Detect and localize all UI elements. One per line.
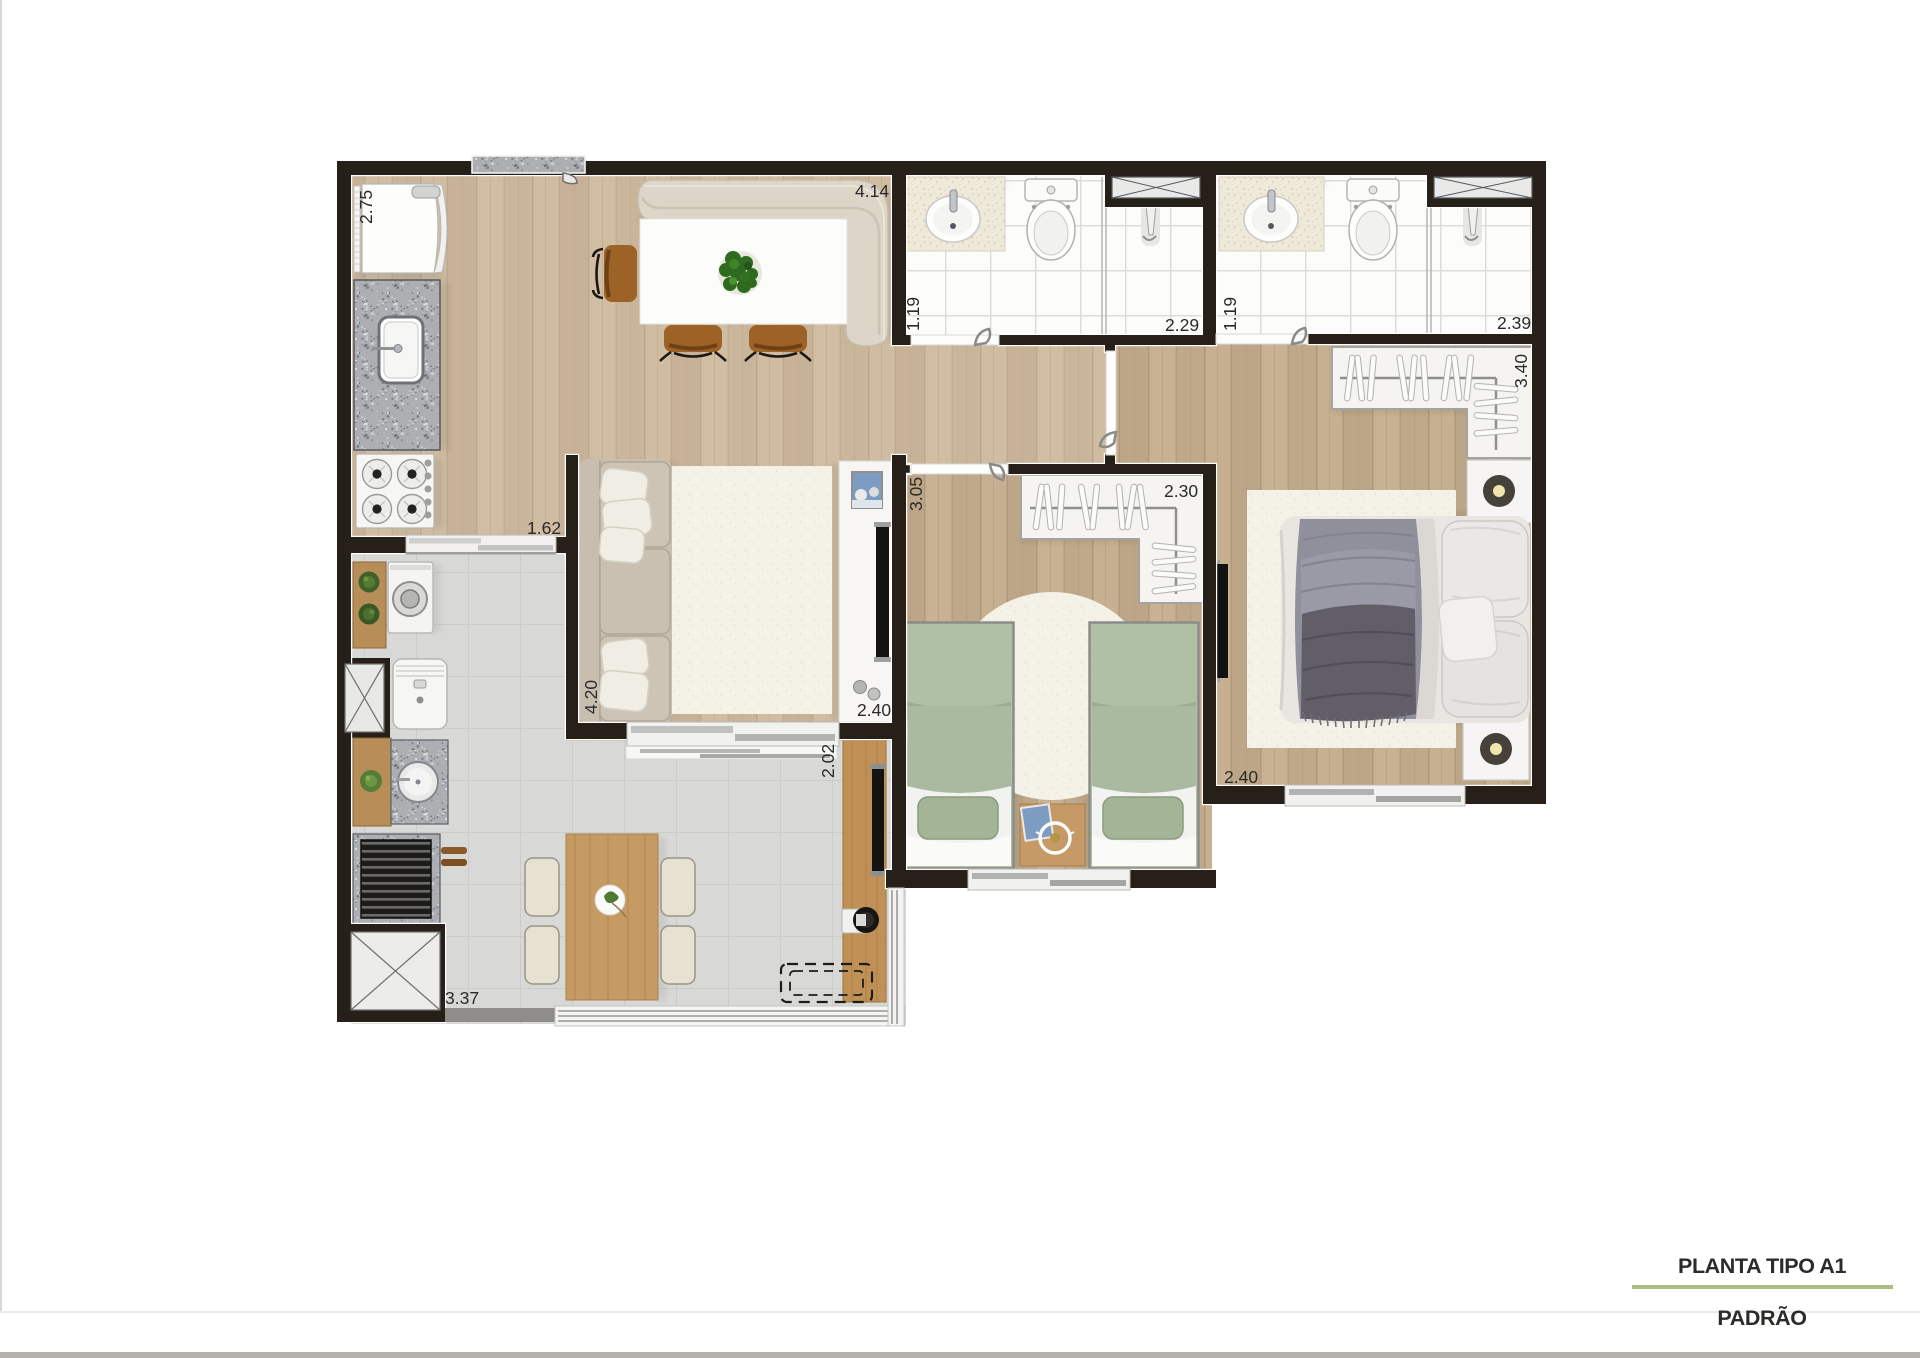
svg-text:2.40: 2.40	[857, 700, 891, 720]
svg-text:2.75: 2.75	[356, 190, 376, 224]
svg-text:3.40: 3.40	[1511, 354, 1531, 388]
svg-text:PADRÃO: PADRÃO	[1717, 1305, 1806, 1330]
svg-text:1.62: 1.62	[527, 518, 561, 538]
svg-text:PLANTA TIPO A1: PLANTA TIPO A1	[1678, 1254, 1846, 1278]
svg-text:2.29: 2.29	[1165, 315, 1199, 335]
svg-text:4.14: 4.14	[855, 181, 889, 201]
svg-text:1.19: 1.19	[903, 297, 923, 331]
svg-text:2.39: 2.39	[1497, 313, 1531, 333]
svg-text:2.30: 2.30	[1164, 481, 1198, 501]
svg-text:2.02: 2.02	[818, 744, 838, 778]
svg-text:1.19: 1.19	[1220, 297, 1240, 331]
svg-text:2.40: 2.40	[1224, 767, 1258, 787]
svg-text:4.20: 4.20	[581, 680, 601, 714]
svg-text:3.37: 3.37	[445, 988, 479, 1008]
svg-text:3.05: 3.05	[906, 477, 926, 511]
